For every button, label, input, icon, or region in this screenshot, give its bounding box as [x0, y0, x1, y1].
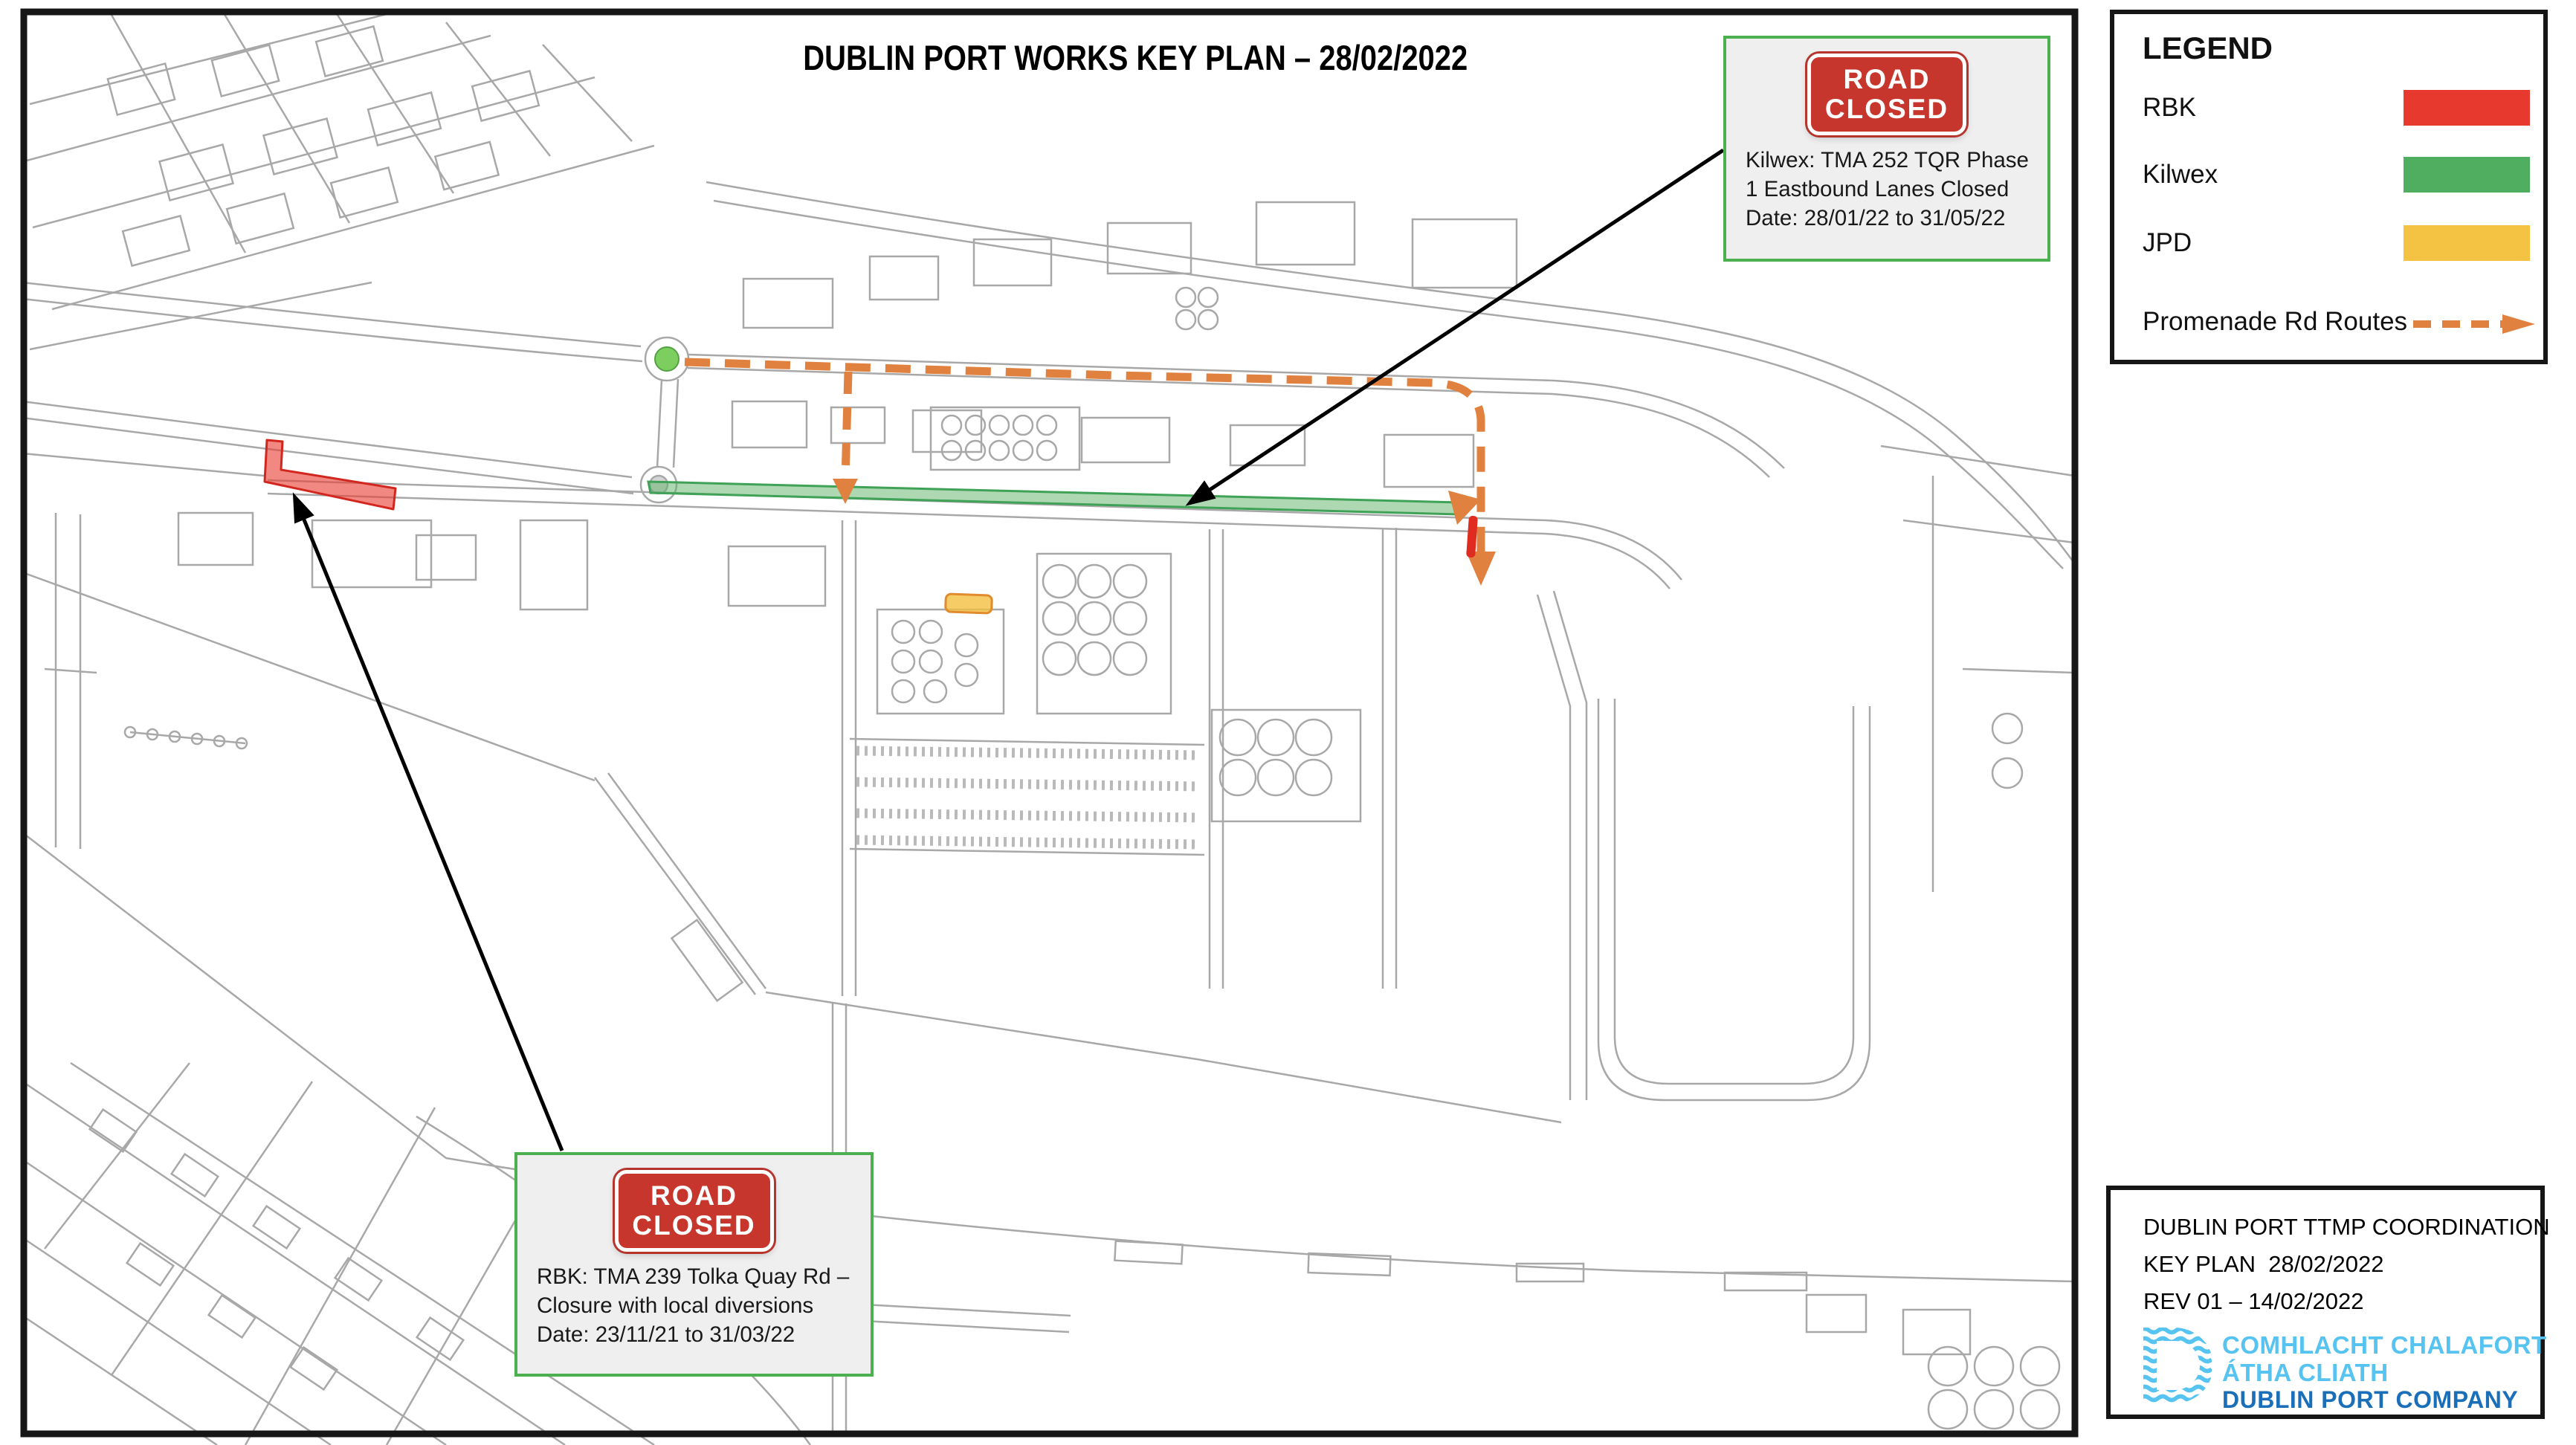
port-roads: [268, 355, 1784, 1435]
rail-sidings: [850, 739, 1204, 855]
callout-line: Closure with local diversions: [537, 1291, 849, 1320]
legend-heading: LEGEND: [2143, 30, 2273, 66]
west-approach-roads: [22, 282, 642, 494]
legend-label-promenade-routes: Promenade Rd Routes: [2143, 304, 2407, 340]
title-block-panel: DUBLIN PORT TTMP COORDINATION KEY PLAN 2…: [2106, 1186, 2545, 1419]
road-closed-sign: ROAD CLOSED: [615, 1170, 774, 1252]
tank-farms: [178, 513, 1360, 821]
callout-kilwex-closure: ROAD CLOSED Kilwex: TMA 252 TQR Phase 1 …: [1723, 36, 2050, 262]
legend-swatch-kilwex: [2404, 157, 2530, 193]
logo-text-irish-2: ÁTHA CLIATH: [2222, 1359, 2547, 1386]
callout-line: RBK: TMA 239 Tolka Quay Rd –: [537, 1262, 849, 1291]
road-closed-sign-line: CLOSED: [1825, 94, 1949, 124]
logo-text-english: DUBLIN PORT COMPANY: [2222, 1386, 2547, 1414]
legend-swatch-jpd: [2404, 225, 2530, 261]
page-title: DUBLIN PORT WORKS KEY PLAN – 28/02/2022: [803, 37, 1353, 78]
river-liffey-edges: [22, 513, 2074, 1281]
road-closed-sign-line: ROAD: [651, 1181, 737, 1211]
dashed-route-arrow-icon: [2412, 311, 2540, 337]
title-block-line: REV 01 – 14/02/2022: [2143, 1288, 2363, 1315]
title-block-line: DUBLIN PORT TTMP COORDINATION: [2143, 1214, 2550, 1241]
callout-kilwex-text: Kilwex: TMA 252 TQR Phase 1 Eastbound La…: [1746, 146, 2029, 233]
legend-panel: LEGEND RBK Kilwex JPD Promenade Rd Route…: [2110, 10, 2548, 364]
signal-roundabout-marker: [655, 347, 679, 371]
callout-line: 1 Eastbound Lanes Closed: [1746, 175, 2029, 204]
jpd-works-highlight: [946, 594, 992, 613]
road-closed-sign-line: ROAD: [1844, 65, 1931, 94]
callout-line: Kilwex: TMA 252 TQR Phase: [1746, 146, 2029, 175]
logo-text-irish-1: COMHLACHT CHALAFORT: [2222, 1331, 2547, 1359]
road-closed-sign: ROAD CLOSED: [1807, 54, 1966, 135]
rbk-lane-marker: [1466, 516, 1478, 558]
callout-rbk-text: RBK: TMA 239 Tolka Quay Rd – Closure wit…: [537, 1262, 849, 1349]
legend-label-rbk: RBK: [2143, 90, 2196, 126]
callout-rbk-closure: ROAD CLOSED RBK: TMA 239 Tolka Quay Rd –…: [514, 1152, 874, 1377]
promenade-rd-route: [685, 362, 1496, 586]
legend-swatch-rbk: [2404, 90, 2530, 126]
road-closed-sign-line: CLOSED: [632, 1211, 755, 1241]
port-basins: [1598, 446, 2074, 1100]
dublin-port-company-logo-text: COMHLACHT CHALAFORT ÁTHA CLIATH DUBLIN P…: [2222, 1331, 2547, 1414]
dublin-port-key-plan-page: DUBLIN PORT WORKS KEY PLAN – 28/02/2022 …: [0, 0, 2576, 1445]
callout-line: Date: 28/01/22 to 31/05/22: [1746, 204, 2029, 233]
callout-line: Date: 23/11/21 to 31/03/22: [537, 1320, 849, 1349]
legend-label-kilwex: Kilwex: [2143, 157, 2218, 193]
title-block-line: KEY PLAN 28/02/2022: [2143, 1251, 2383, 1278]
east-wall-blocks: [27, 10, 654, 349]
dublin-port-company-logo-icon: [2140, 1326, 2212, 1406]
legend-label-jpd: JPD: [2143, 225, 2192, 261]
